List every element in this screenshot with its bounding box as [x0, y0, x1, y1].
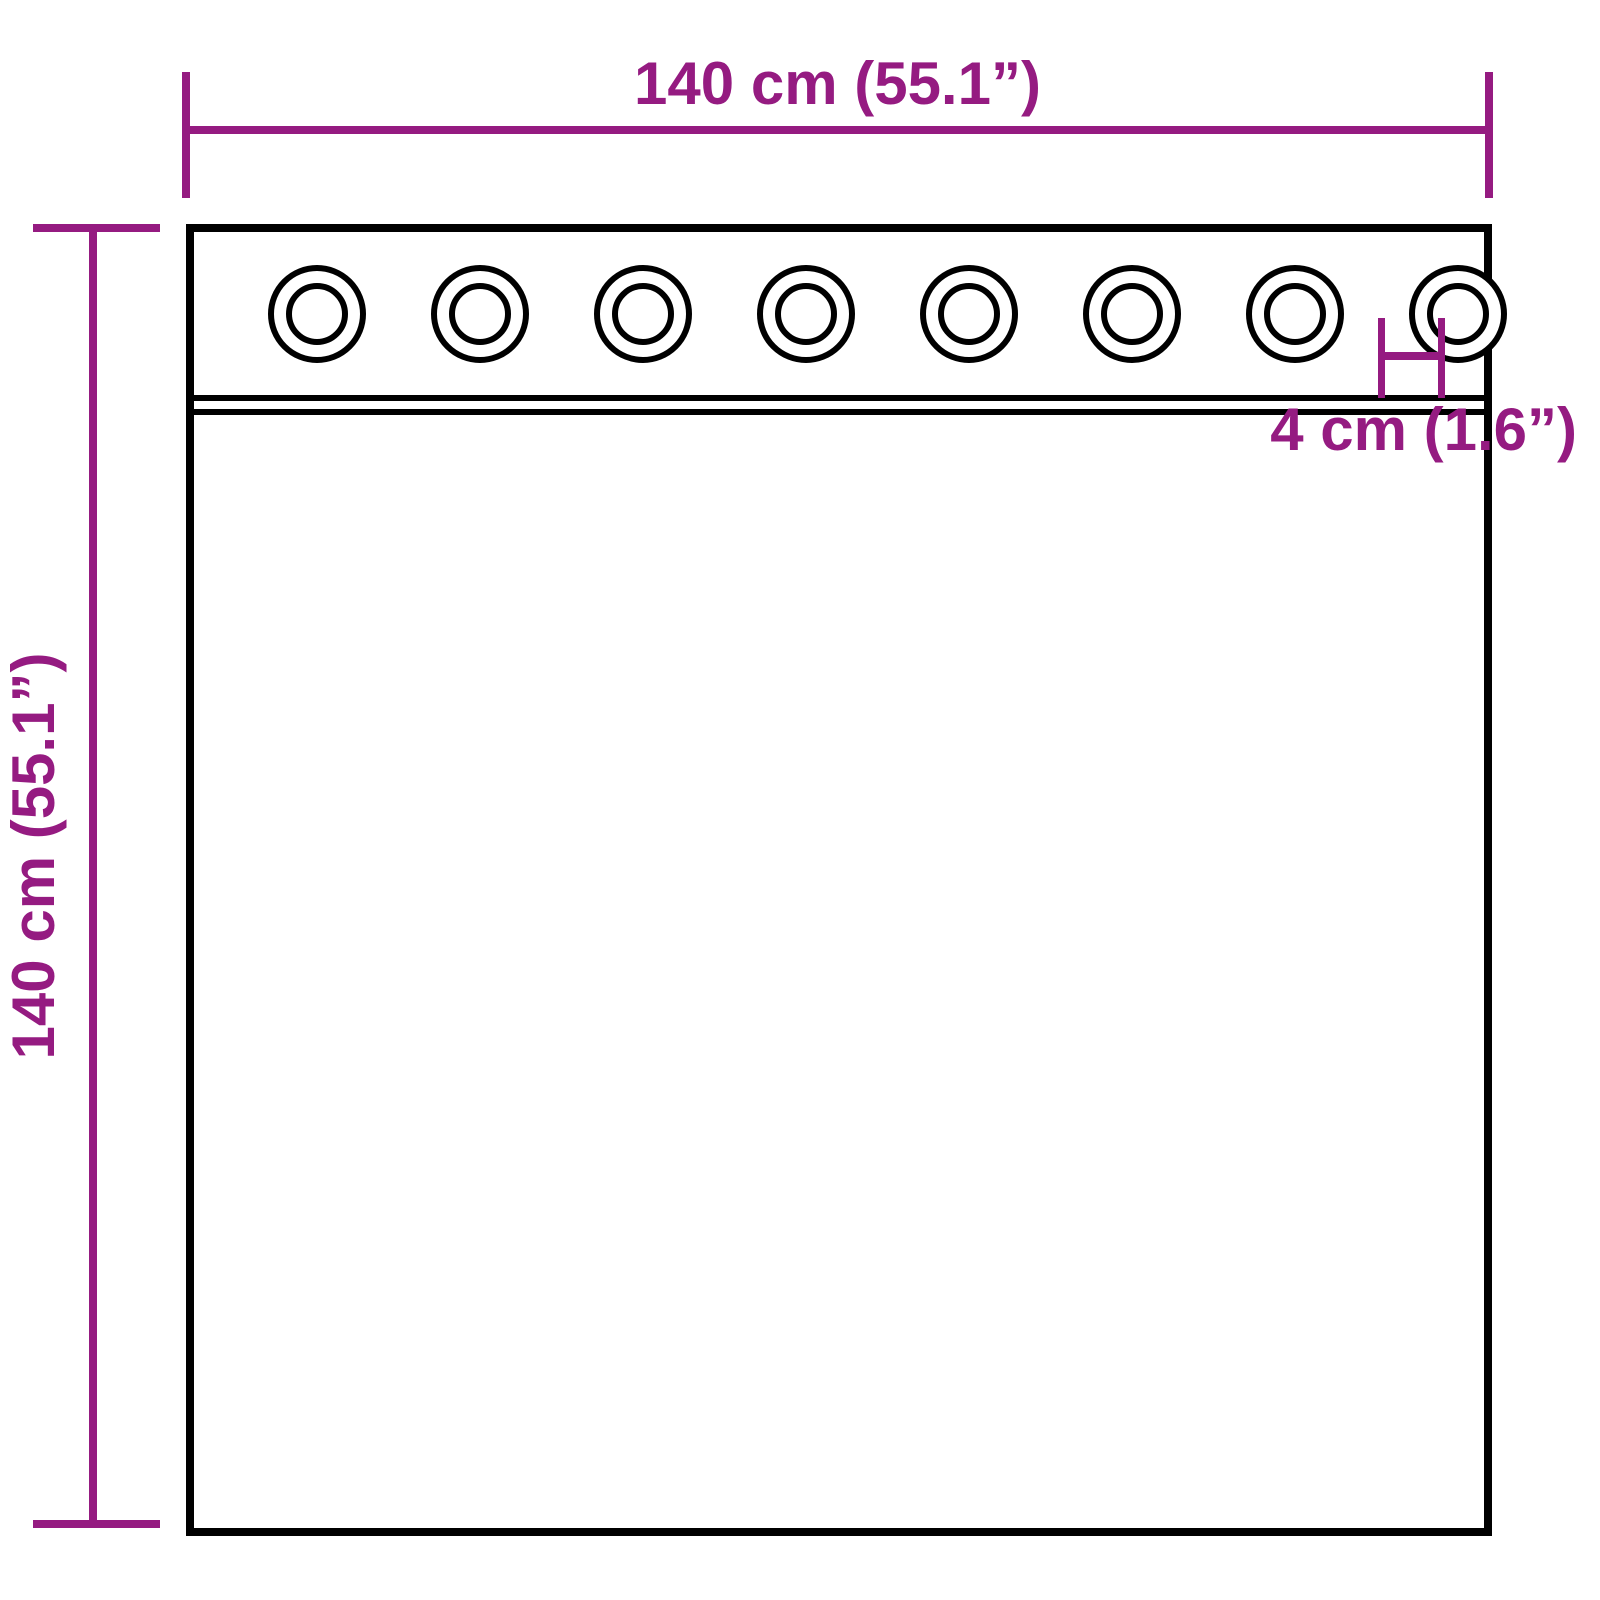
top-dimension-line — [186, 126, 1489, 134]
left-dimension-line — [89, 228, 97, 1528]
grommet-eyelet — [268, 265, 366, 363]
grommet-eyelet — [431, 265, 529, 363]
grommet-eyelet — [594, 265, 692, 363]
grommet-hole-dimension-label: 4 cm (1.6”) — [1270, 400, 1577, 460]
grommet-inner-ring — [286, 283, 348, 345]
grommet-inner-ring — [1427, 283, 1489, 345]
grommet-inner-ring — [1101, 283, 1163, 345]
grommet-eyelet — [1246, 265, 1344, 363]
grommet-inner-ring — [449, 283, 511, 345]
width-dimension-label: 140 cm (55.1”) — [186, 54, 1489, 114]
grommet-inner-ring — [1264, 283, 1326, 345]
grommet-eyelet — [1409, 265, 1507, 363]
grommet-inner-ring — [775, 283, 837, 345]
grommet-inner-ring — [938, 283, 1000, 345]
grommet-eyelet — [920, 265, 1018, 363]
grommet-eyelet — [757, 265, 855, 363]
grommet-bracket-line — [1378, 352, 1445, 360]
grommet-eyelet — [1083, 265, 1181, 363]
height-dimension-label: 140 cm (55.1”) — [4, 206, 76, 1506]
grommet-inner-ring — [612, 283, 674, 345]
dimension-diagram-canvas: 140 cm (55.1”) 140 cm (55.1”) 4 cm (1.6”… — [0, 0, 1600, 1600]
left-dimension-bottom-tick — [33, 1520, 160, 1528]
